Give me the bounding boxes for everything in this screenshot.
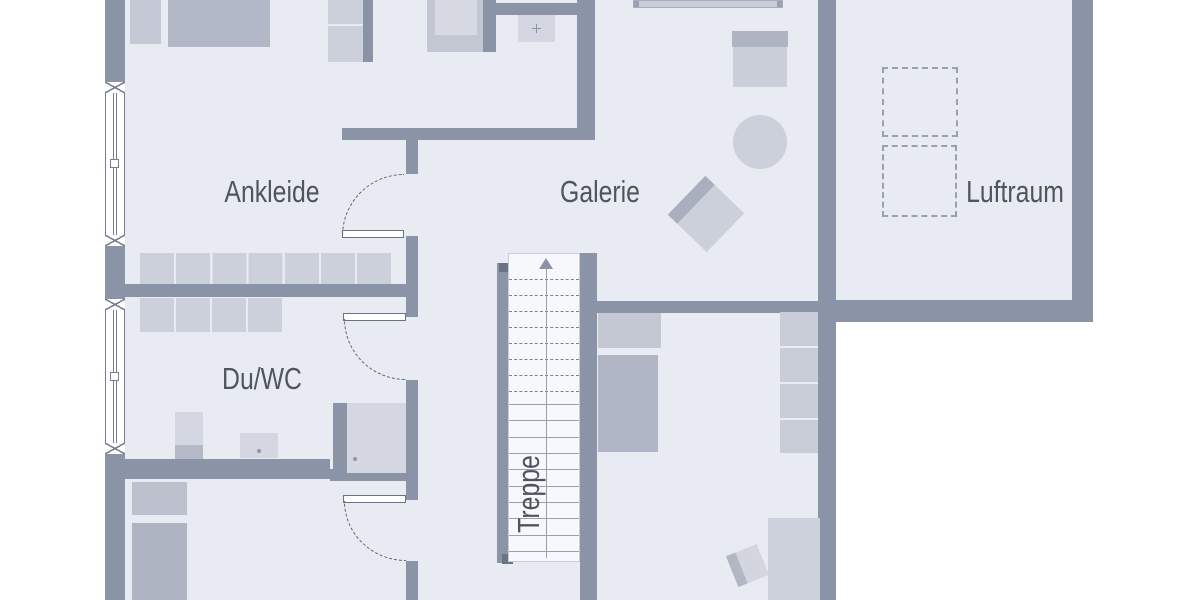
room-label-ankleide: Ankleide [224, 174, 319, 210]
stair-tread [509, 404, 579, 405]
room-label-du-wc: Du/WC [222, 361, 302, 397]
wall-window-joint-marker [105, 82, 125, 93]
wall-window-joint-marker [105, 443, 125, 454]
window-left-upper [105, 93, 125, 235]
wall-jamb-ankleide-door-top [406, 128, 418, 174]
shower-tray [347, 403, 406, 473]
stair-tread [509, 391, 579, 392]
wall-jamb-duwc-bedroom [406, 380, 418, 500]
stair-tread [509, 327, 579, 328]
stair-tread [509, 453, 579, 454]
round-table [733, 115, 787, 169]
wall-ankleide-duwc-divider [125, 284, 418, 297]
floor-area-luftraum-annex [836, 0, 1093, 322]
bed-pillow [598, 313, 661, 348]
wall-luftraum-bottom [818, 300, 1093, 322]
wall-window-joint-marker [105, 235, 125, 246]
wall-shower-side [333, 403, 347, 473]
toilet [175, 412, 203, 445]
wall-jamb-between-doors [406, 236, 418, 317]
wall-window-joint-marker [105, 299, 125, 310]
room-label-luftraum: Luftraum [966, 174, 1064, 210]
stair-tread [509, 343, 579, 344]
wall-stairwell-right [580, 253, 597, 600]
wall-duwc-bottom [125, 459, 330, 479]
built-in-closet-row [140, 253, 393, 284]
stair-railing [497, 263, 508, 563]
wardrobe [328, 0, 363, 62]
wardrobe [427, 0, 483, 52]
window-handle [110, 159, 119, 168]
stair-tread [509, 279, 579, 280]
stair-tread [509, 551, 579, 552]
armchair-seat [733, 47, 787, 87]
railing-post-top [499, 263, 508, 272]
stair-tread [509, 295, 579, 296]
wall-niche-top [489, 3, 580, 15]
luftraum-void-marker [882, 145, 957, 217]
stair-tread [509, 359, 579, 360]
room-label-galerie: Galerie [560, 174, 640, 210]
bed [598, 355, 658, 452]
stair-tread [509, 437, 579, 438]
bed [132, 523, 187, 600]
wall-galerie-left [577, 0, 595, 140]
stair-tread [509, 311, 579, 312]
desk [768, 518, 820, 600]
bed [168, 0, 270, 47]
wall-luftraum-right [1072, 0, 1093, 322]
floor-plan: Ankleide Galerie Luftraum Du/WC Treppe [0, 0, 1200, 600]
toilet-cistern [175, 445, 203, 459]
washbasin [240, 433, 278, 458]
wardrobe-shelf [435, 0, 477, 35]
wall-stub-bedroom [363, 0, 373, 62]
washbasin [518, 15, 555, 42]
luftraum-void-marker [882, 67, 958, 137]
window-handle [110, 372, 119, 381]
up-arrow-icon [539, 258, 553, 269]
wall-corridor-top [342, 128, 595, 140]
stair-tread [509, 375, 579, 376]
wall-jamb-bedroom-door-bottom [406, 561, 418, 600]
stair-tread [509, 420, 579, 421]
wardrobe [780, 312, 818, 453]
window-left-lower [105, 310, 125, 443]
sideboard [633, 0, 783, 8]
bed-pillow [130, 0, 161, 44]
bed-pillow [132, 482, 187, 515]
armchair-back [732, 31, 788, 47]
room-label-treppe: Treppe [511, 455, 547, 533]
built-in-closet-row [140, 298, 283, 332]
stair-tread [509, 535, 579, 536]
